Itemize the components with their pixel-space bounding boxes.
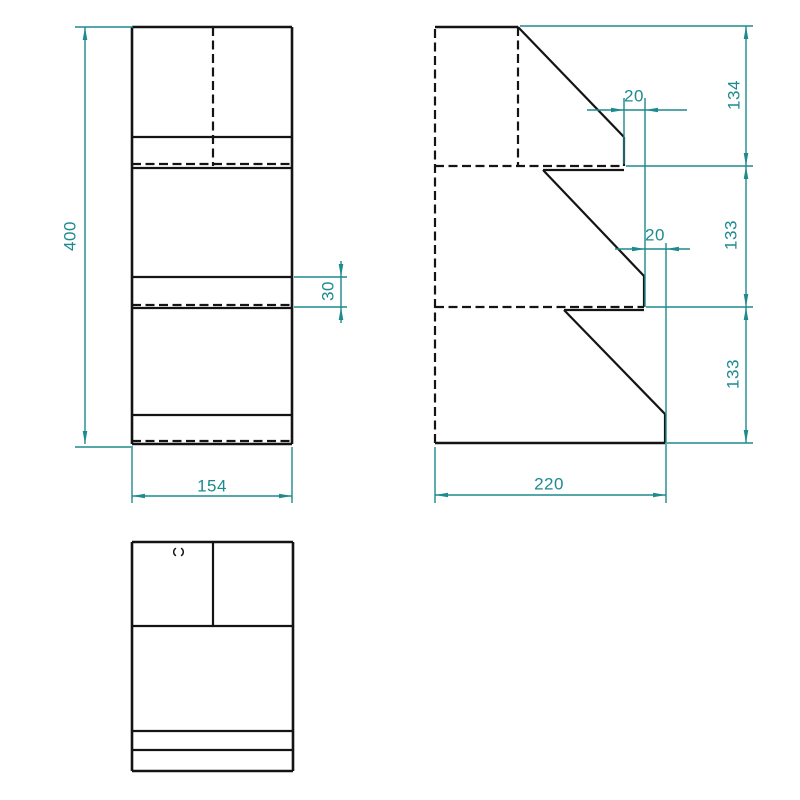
drawing-canvas: 400154301341331332020220	[0, 0, 800, 800]
dim-step-face-height-label: 30	[319, 281, 338, 301]
drawing-background	[0, 0, 800, 800]
dim-depth-label: 220	[534, 475, 564, 494]
dim-front-width-label: 154	[197, 477, 227, 496]
technical-drawing-page: 400154301341331332020220	[0, 0, 800, 800]
dim-tier2-height-label: 133	[722, 220, 741, 250]
dim-overall-height-label: 400	[61, 221, 80, 251]
dim-step-offset-upper-label: 20	[624, 87, 644, 106]
dim-step-offset-lower-label: 20	[645, 226, 665, 245]
dim-tier3-height-label: 133	[724, 359, 743, 389]
dim-tier1-height-label: 134	[725, 80, 744, 110]
